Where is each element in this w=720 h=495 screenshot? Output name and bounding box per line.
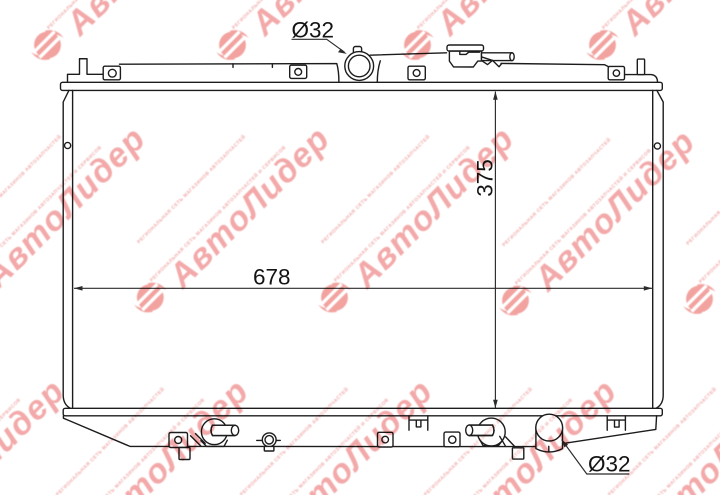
svg-text:Ø32: Ø32: [588, 451, 631, 476]
svg-text:Ø32: Ø32: [292, 17, 335, 42]
svg-text:678: 678: [253, 265, 291, 290]
